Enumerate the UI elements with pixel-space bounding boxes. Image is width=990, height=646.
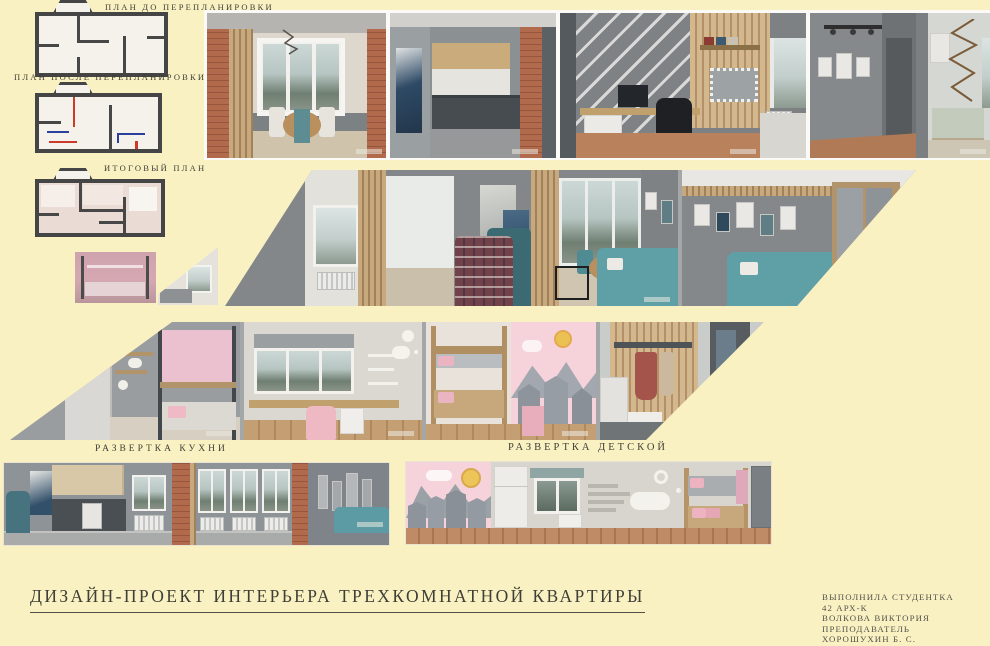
watermark [388,431,414,436]
plan-room [83,185,123,205]
pillow [607,258,623,270]
cloud-decor [392,346,410,359]
wall-frame [836,53,852,79]
wall-art [760,214,774,236]
plan-wall [79,209,125,212]
floor-plan-before [35,12,168,77]
ceiling [390,13,556,27]
render-living-room-1 [225,170,678,306]
credits-block: ВЫПОЛНИЛА СТУДЕНТКА 42 АРХ-К ВОЛКОВА ВИК… [822,592,954,645]
credits-line: ХОРОШУХИН Б. С. [822,634,954,645]
wall-frame [362,479,372,509]
teal-armchair [6,491,30,533]
floor [406,528,772,545]
window-pane [213,471,224,511]
pink-chair [306,406,336,440]
pink-pillow [438,392,454,403]
watermark [960,149,986,154]
pink-pillow [706,508,720,518]
plan-wall [123,36,126,73]
light-strip [87,265,143,268]
wood-slat-wall [229,29,253,158]
speed-line-decor [588,484,618,488]
abstract-art [30,471,52,515]
wall-shelf [368,368,394,371]
kitchen-elevation [3,462,390,546]
plan-new-wall [135,141,138,149]
pink-chair [522,406,544,436]
plan-final-label: ИТОГОВЫЙ ПЛАН [104,163,206,173]
render-pink-closet [75,252,156,303]
window [262,469,290,513]
wall-shelf [368,382,398,385]
window-pane [200,471,211,511]
plan-after-label: ПЛАН ПОСЛЕ ПЕРЕПЛАНИРОВКИ [14,72,206,82]
bed-post [146,256,149,299]
shelf-nook [900,186,916,306]
moon-decor [402,330,414,342]
bed [85,282,145,296]
window-pane [264,471,275,511]
cloud-mural [426,470,452,481]
radiator [264,517,288,531]
floor-plan-after [35,93,162,153]
pink-pillow [690,478,704,488]
children-elevation [405,461,772,545]
plan-wall [77,40,109,43]
wardrobe [65,337,112,440]
upper-cabinets [52,465,124,495]
render-bedroom-hall [810,13,990,158]
pink-pillow [438,356,454,366]
window-pane [134,477,148,509]
window [198,469,226,513]
brick-pillar [367,29,386,158]
cloud-decor [630,492,670,510]
window-pane [257,351,286,391]
plan-demolished-wall [117,133,145,135]
speed-line-decor [588,492,630,496]
project-title: ДИЗАЙН-ПРОЕКТ ИНТЕРЬЕРА ТРЕХКОМНАТНОЙ КВ… [30,586,645,613]
render-dining-bay-window [207,13,386,158]
wall-frame [780,206,796,230]
books [704,37,714,45]
plan-wall [39,121,61,124]
window [254,348,354,394]
bench [160,289,192,303]
plan-wall [109,105,112,149]
brick-pillar [172,463,190,546]
window-pane [537,481,556,511]
render-white-hall [158,247,218,305]
spot-light [850,29,856,35]
floor-plan-final [35,179,165,237]
credits-line: ВОЛКОВА ВИКТОРИЯ [822,613,954,624]
plan-demolished-wall [117,133,119,143]
wall-edge [916,13,928,158]
window-shade [530,468,584,478]
plan-wall [39,213,59,216]
bunk-rail [434,346,504,354]
render-kitchen [390,13,556,158]
plan-wall [147,36,164,39]
drawer-unit [558,514,582,528]
wall-frame [736,202,754,228]
door-glass [716,330,736,410]
sun-mural [461,468,481,488]
sun-mural [554,330,572,348]
bunk-post [502,326,507,440]
spot-light [868,29,874,35]
house-mural [408,502,426,528]
watermark [357,522,383,527]
house-mural [468,498,486,528]
bunk-frame [160,382,236,388]
window-pane [232,471,243,511]
window-edge [982,38,990,108]
render-hallway [600,322,764,440]
render-living-room-2 [682,170,916,306]
window [770,38,806,108]
window-pane [322,351,351,391]
cloud-decor [128,358,142,368]
books [728,37,738,45]
brick-pillar [292,463,308,546]
pink-pillow [692,508,706,518]
wall-art [716,212,730,232]
floor [386,268,454,306]
watermark [356,149,382,154]
render-children-room-3 [426,322,596,440]
radiator [317,272,355,290]
pink-curtain [736,470,748,504]
wardrobe-seam [494,486,528,487]
window-pane [277,471,288,511]
shelf [115,370,147,374]
window-pane [289,351,318,391]
spot-light [830,29,836,35]
bunk-post [431,326,436,440]
floor [810,133,920,158]
bed-post [81,256,84,299]
speed-line-decor [588,508,616,512]
wood-slat-wall [358,170,386,306]
presentation-board: ПЛАН ДО ПЕРЕПЛАНИРОВКИ ПЛАН ПОСЛЕ ПЕРЕПЛ… [0,0,990,646]
window-pane [559,481,578,511]
red-coat [635,352,657,400]
floor [430,129,522,158]
plaid-armchair [455,236,513,306]
computer-monitor [618,85,648,107]
watermark [562,431,588,436]
wall-frame [818,57,832,77]
cube-coffee-table [555,266,589,300]
children-elevation-label: РАЗВЕРТКА ДЕТСКОЙ [508,442,668,453]
wall-frame [856,57,870,77]
pillow [740,262,758,275]
watermark [512,149,538,154]
wall-frame [694,204,710,226]
wood-trim [190,463,196,546]
table-runner [294,109,310,143]
drawer-unit [340,408,364,434]
children-room-strip [10,322,766,440]
pink-curtain [162,330,232,382]
sheer-window [386,176,454,268]
speed-line-decor [588,500,624,504]
watermark [820,297,846,302]
floor [576,133,766,158]
watermark [644,297,670,302]
plan-new-wall [49,141,77,143]
wardrobe [494,466,528,528]
house-mural [446,490,466,528]
plan-wall [123,197,126,233]
floor [600,422,764,440]
render-children-room-1 [10,322,240,440]
window-pane [316,44,339,110]
window-pane [245,471,256,511]
cloud-mural [522,340,542,352]
credits-line: ПРЕПОДАВАТЕЛЬ [822,624,954,635]
credits-line: ВЫПОЛНИЛА СТУДЕНТКА [822,592,954,603]
plan-new-wall [73,97,75,127]
bed [760,113,806,158]
kitchen-elevation-label: РАЗВЕРТКА КУХНИ [95,444,228,454]
abstract-art [396,48,422,133]
brick-pillar [207,29,229,158]
plan-wall [39,44,59,47]
upper-cabinets [432,43,510,71]
plan-wall [79,183,82,211]
watermark [206,431,232,436]
door [542,27,556,158]
brick-pillar [520,27,542,158]
plan-demolished-wall [47,131,69,133]
chair [319,107,335,137]
window [313,205,359,267]
pink-pillow [168,406,186,418]
house-mural [428,496,444,528]
guitar [903,228,912,262]
backsplash [432,69,510,95]
window [132,475,166,511]
lower-cabinets [432,95,522,132]
wall-frame [346,473,358,509]
zigzag-pendant-light [279,29,315,55]
star-decor [414,350,418,354]
door [560,13,576,158]
watermark [730,149,756,154]
wardrobe-door [837,188,863,300]
teal-sofa [727,252,842,306]
window-pane [150,477,164,509]
plan-wall [77,57,80,73]
radiator [200,517,224,531]
credits-line: 42 АРХ-К [822,603,954,614]
beige-coat [660,352,674,396]
zigzag-string-light [944,19,986,107]
plan-wall [77,16,80,40]
wall-frame [645,192,657,210]
roman-shade [254,334,354,348]
books [716,37,726,45]
render-children-room-2 [244,322,422,440]
plan-wall [99,221,125,224]
plan-room [129,187,157,211]
window [230,469,258,513]
wall-frame [318,475,328,509]
star-decor [676,488,681,493]
teal-sofa [334,507,390,533]
lighted-mirror [710,68,758,102]
radiator [232,517,256,531]
living-room-strip [150,170,920,306]
hallway-shelf [614,342,692,348]
shelf [115,352,153,356]
render-workspace [560,13,806,158]
wall-art [661,200,673,224]
watermark [698,431,724,436]
oven [82,503,102,529]
book-shelf [700,45,760,50]
grey-door [751,466,772,528]
window [534,478,580,514]
moon-decor [654,470,668,484]
radiator [134,515,164,531]
plan-room [41,185,75,207]
wardrobe-door [866,188,892,300]
moon-decor [118,380,128,390]
